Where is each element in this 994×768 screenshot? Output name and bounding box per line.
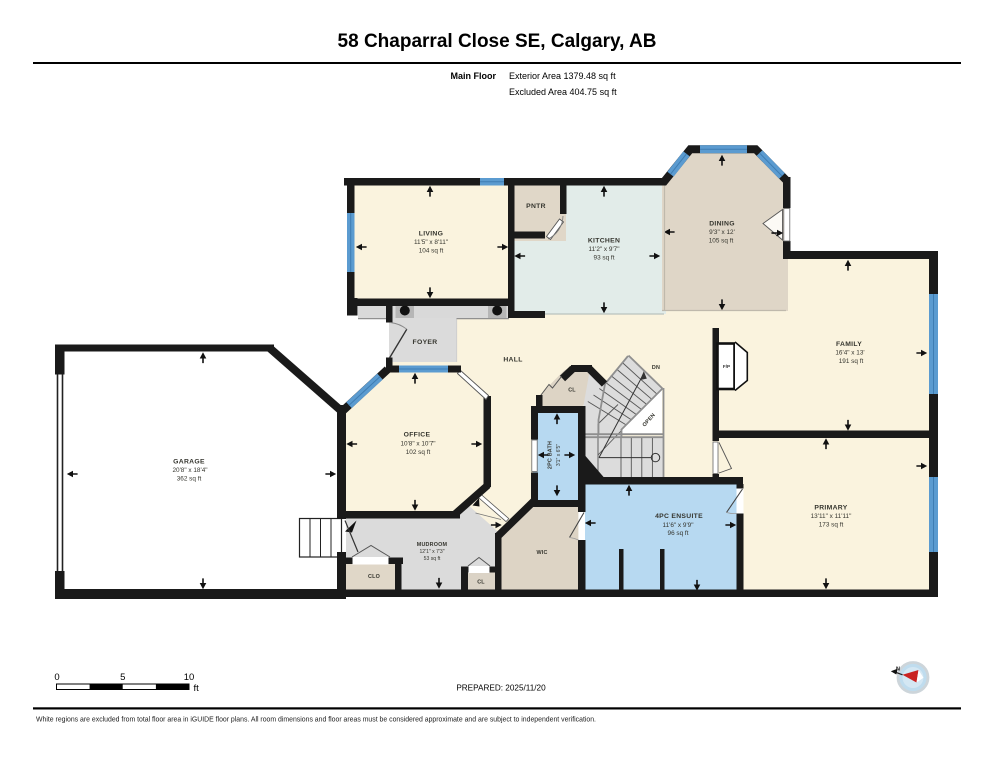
svg-text:12'1" x 7'3": 12'1" x 7'3" — [419, 549, 444, 555]
svg-text:191 sq ft: 191 sq ft — [839, 358, 864, 365]
svg-text:PREPARED: 2025/11/20: PREPARED: 2025/11/20 — [456, 684, 546, 693]
svg-text:MUDROOM: MUDROOM — [417, 542, 448, 548]
svg-text:HALL: HALL — [503, 357, 522, 364]
svg-text:FAMILY: FAMILY — [836, 341, 862, 348]
svg-text:10'8" x 10'7": 10'8" x 10'7" — [400, 441, 435, 448]
svg-text:WIC: WIC — [536, 550, 547, 556]
svg-text:11'5" x 8'11": 11'5" x 8'11" — [414, 239, 448, 246]
svg-text:GARAGE: GARAGE — [173, 459, 205, 466]
svg-text:White regions are excluded fro: White regions are excluded from total fl… — [36, 717, 596, 724]
svg-text:PNTR: PNTR — [526, 203, 546, 210]
svg-text:9'3" x 12': 9'3" x 12' — [709, 229, 735, 236]
svg-text:3'1" x 6'5": 3'1" x 6'5" — [556, 444, 562, 466]
svg-text:LIVING: LIVING — [419, 231, 443, 238]
svg-text:11'2" x 9'7": 11'2" x 9'7" — [588, 246, 619, 253]
svg-text:93 sq ft: 93 sq ft — [594, 255, 615, 262]
svg-text:KITCHEN: KITCHEN — [588, 238, 620, 245]
svg-text:20'8" x 18'4": 20'8" x 18'4" — [172, 467, 207, 474]
svg-text:FOYER: FOYER — [413, 339, 438, 346]
svg-text:102 sq ft: 102 sq ft — [406, 449, 431, 456]
svg-text:13'11" x 11'11": 13'11" x 11'11" — [811, 513, 852, 520]
svg-text:362 sq ft: 362 sq ft — [177, 476, 202, 483]
svg-text:96 sq ft: 96 sq ft — [668, 530, 689, 537]
svg-text:DINING: DINING — [709, 221, 735, 228]
svg-text:PRIMARY: PRIMARY — [814, 505, 847, 512]
svg-text:105 sq ft: 105 sq ft — [709, 238, 734, 245]
svg-text:DN: DN — [652, 365, 660, 371]
svg-text:173 sq ft: 173 sq ft — [819, 522, 844, 529]
svg-text:OFFICE: OFFICE — [404, 432, 431, 439]
svg-text:N: N — [896, 667, 900, 673]
svg-text:CL: CL — [477, 580, 485, 586]
svg-text:F/P: F/P — [723, 364, 730, 369]
svg-text:CL: CL — [568, 388, 576, 394]
svg-text:53 sq ft: 53 sq ft — [424, 556, 441, 562]
svg-text:CLO: CLO — [368, 574, 380, 580]
svg-text:ft: ft — [194, 683, 200, 694]
svg-text:11'6" x 9'9": 11'6" x 9'9" — [662, 522, 693, 529]
svg-text:16'4" x 13': 16'4" x 13' — [835, 350, 864, 357]
svg-text:10: 10 — [184, 672, 195, 683]
svg-text:104 sq ft: 104 sq ft — [419, 248, 444, 255]
svg-text:0: 0 — [54, 672, 59, 683]
svg-text:5: 5 — [120, 672, 125, 683]
svg-text:4PC ENSUITE: 4PC ENSUITE — [655, 513, 703, 520]
